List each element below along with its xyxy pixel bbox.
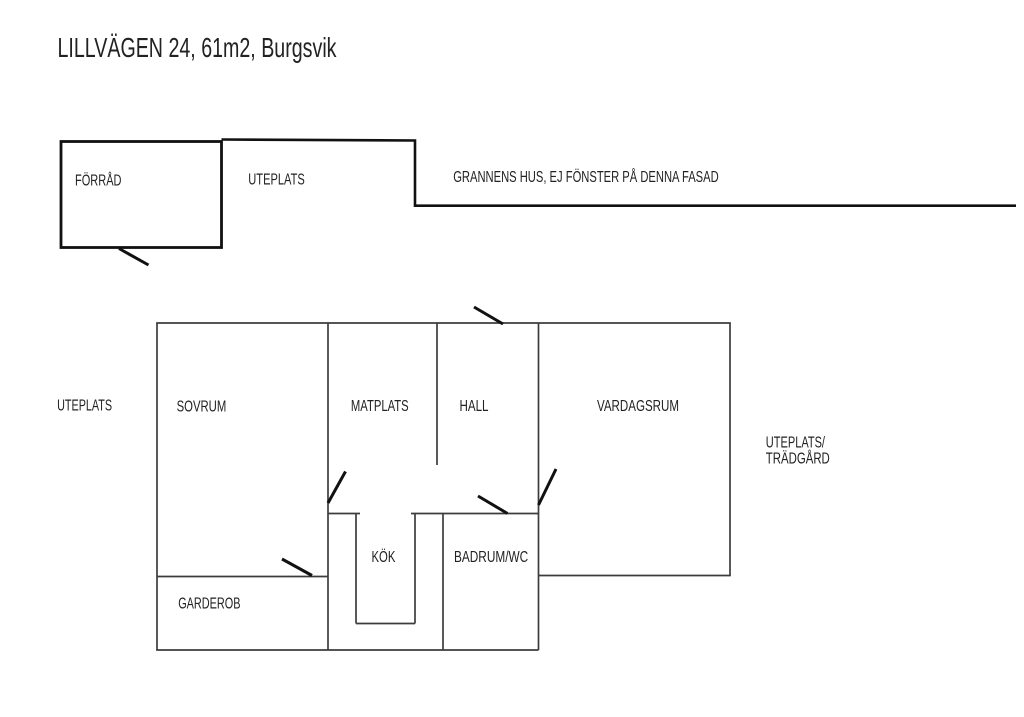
svg-text:UTEPLATS: UTEPLATS bbox=[57, 398, 112, 415]
svg-text:VARDAGSRUM: VARDAGSRUM bbox=[597, 398, 679, 415]
svg-text:TRÄDGÅRD: TRÄDGÅRD bbox=[766, 451, 830, 468]
svg-text:MATPLATS: MATPLATS bbox=[351, 398, 409, 415]
svg-text:KÖK: KÖK bbox=[372, 548, 396, 566]
svg-text:FÖRRÅD: FÖRRÅD bbox=[75, 172, 122, 190]
svg-text:LILLVÄGEN 24, 61m2, Burgsvik: LILLVÄGEN 24, 61m2, Burgsvik bbox=[58, 32, 337, 63]
svg-text:UTEPLATS: UTEPLATS bbox=[248, 172, 304, 189]
svg-text:GARDEROB: GARDEROB bbox=[178, 596, 240, 613]
svg-text:UTEPLATS/: UTEPLATS/ bbox=[766, 434, 826, 451]
svg-text:BADRUM/WC: BADRUM/WC bbox=[454, 549, 528, 566]
svg-text:SOVRUM: SOVRUM bbox=[177, 399, 227, 416]
svg-text:GRANNENS HUS, EJ FÖNSTER PÅ DE: GRANNENS HUS, EJ FÖNSTER PÅ DENNA FASAD bbox=[453, 168, 719, 186]
svg-text:HALL: HALL bbox=[460, 398, 489, 415]
